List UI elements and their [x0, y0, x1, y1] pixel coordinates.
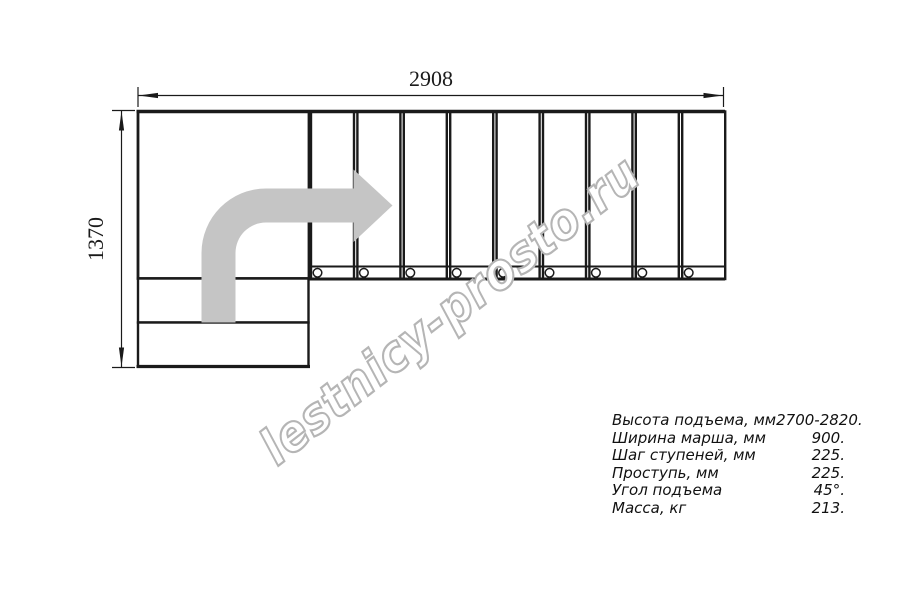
width-dimension-label: 2908 — [409, 66, 453, 91]
spec-label: Масса, кг — [612, 500, 686, 518]
spec-label: Ширина марша, мм — [612, 430, 766, 448]
stair-drawing-page: 2908 1370 lestnicy-prosto.ru Выс — [0, 0, 900, 600]
height-dimension-label: 1370 — [83, 217, 108, 261]
step-mount-circle — [684, 269, 693, 278]
step-mount-circle — [313, 269, 322, 278]
lower-step — [138, 323, 309, 367]
dimension-arrow-right — [704, 93, 724, 98]
dimension-arrow-bottom — [119, 348, 124, 368]
spec-row: Угол подъема 45°. — [612, 482, 845, 500]
step-panel — [682, 112, 725, 280]
spec-label: Проступь, мм — [612, 465, 719, 483]
spec-label: Высота подъема, мм — [612, 412, 776, 430]
spec-row: Масса, кг 213. — [612, 500, 845, 518]
spec-value: 900. — [812, 430, 845, 448]
spec-row: Ширина марша, мм 900. — [612, 430, 845, 448]
spec-value: 45°. — [814, 482, 845, 500]
dimension-arrow-top — [119, 111, 124, 131]
spec-value: 213. — [812, 500, 845, 518]
dimension-arrow-left — [139, 93, 159, 98]
spec-value: 225. — [812, 447, 845, 465]
step-mount-circle — [406, 269, 415, 278]
spec-label: Угол подъема — [612, 482, 722, 500]
step-panel — [404, 112, 447, 280]
spec-table: Высота подъема, мм 2700-2820. Ширина мар… — [612, 412, 845, 517]
spec-row: Проступь, мм 225. — [612, 465, 845, 483]
spec-value: 2700-2820. — [776, 412, 863, 430]
spec-value: 225. — [812, 465, 845, 483]
step-mount-circle — [638, 269, 647, 278]
step-mount-circle — [592, 269, 601, 278]
spec-label: Шаг ступеней, мм — [612, 447, 756, 465]
spec-row: Высота подъема, мм 2700-2820. — [612, 412, 845, 430]
left-dimension — [112, 111, 135, 368]
step-mount-circle — [360, 269, 369, 278]
spec-row: Шаг ступеней, мм 225. — [612, 447, 845, 465]
